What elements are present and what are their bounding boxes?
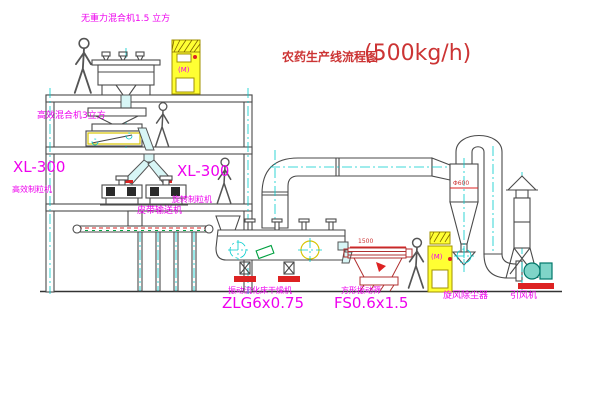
cad-canvas: 农药生产线流程图 (500kg/h) 无重力混合机1.5 立方 高效混合机3立方… — [0, 0, 600, 403]
person-icon — [75, 39, 91, 93]
label-granulator-right-model: XL-300 — [177, 164, 229, 179]
cabinet-1-marking: (M) — [178, 67, 190, 74]
induced-draft-fan — [518, 263, 554, 289]
dimension-cyclone-diameter: Φ600 — [453, 181, 469, 187]
drawing-capacity: (500kg/h) — [364, 43, 471, 65]
control-cabinet-2 — [428, 232, 452, 292]
label-granulator-left-name: 高效制粒机 — [12, 186, 52, 194]
label-granulator-right-name: 旋转制粒机 — [172, 196, 212, 204]
belt-conveyor — [73, 211, 213, 291]
person-icon — [409, 238, 424, 288]
label-top-mixer: 无重力混合机1.5 立方 — [81, 15, 170, 24]
cabinet-2-marking: (M) — [431, 254, 443, 261]
granulator-left — [100, 176, 144, 205]
label-cyclone: 旋风除尘器 — [443, 292, 488, 301]
label-belt-conveyor: 皮带输送机 — [137, 207, 182, 216]
person-icon — [156, 103, 169, 146]
label-screen-model: FS0.6x1.5 — [334, 296, 408, 311]
exhaust-duct-riser — [262, 150, 455, 232]
label-dryer-model: ZLG6x0.75 — [222, 296, 304, 311]
label-granulator-left-model: XL-300 — [13, 160, 65, 175]
label-high-mixer: 高效混合机3立方 — [37, 112, 106, 121]
label-fan: 引风机 — [510, 292, 537, 301]
vibrating-screen — [338, 242, 412, 291]
dimension-screen-width: 1500 — [358, 239, 373, 245]
